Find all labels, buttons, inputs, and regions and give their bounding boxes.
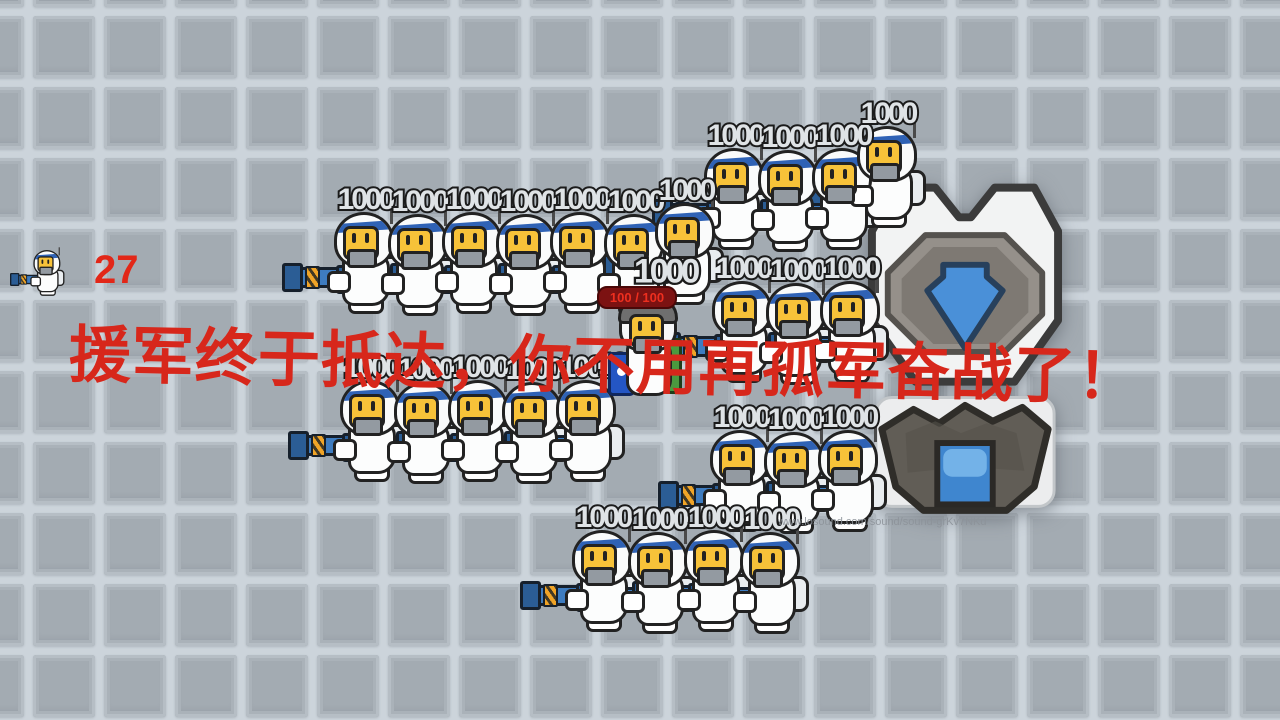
unit-hp-label: 1000 [688, 503, 743, 533]
soldier-arm [621, 591, 645, 613]
unit-hp-label: 1000 [716, 254, 771, 284]
gas-mask-icon [455, 249, 485, 268]
unit-hp-label: 1000 [770, 256, 825, 286]
soldier-arm [381, 273, 405, 295]
unit-hp-label: 1000 [446, 185, 501, 215]
soldier-arm [435, 271, 459, 293]
soldier-arm [565, 589, 589, 611]
gas-mask-icon [641, 569, 671, 588]
unit-hp-label: 1000 [861, 99, 916, 129]
soldier-arm [327, 271, 351, 293]
gas-mask-icon [515, 419, 545, 438]
bazooka-muzzle [288, 431, 309, 460]
gas-mask-icon [563, 249, 593, 268]
soldier-arm [811, 489, 835, 511]
soldier-eyes [622, 235, 626, 245]
hazard-stripe [543, 584, 558, 607]
unit-hp-label: 1000 [338, 185, 393, 215]
unit-hp-label: 1000 [608, 187, 663, 217]
soldier-eyes [875, 147, 879, 157]
gas-mask-icon [771, 187, 801, 206]
soldier-arm [543, 271, 567, 293]
soldier-eyes [836, 451, 840, 461]
soldier-arm [333, 439, 357, 461]
gas-mask-icon [585, 567, 615, 586]
resource-counter: 27 [94, 248, 139, 293]
gas-mask-icon [401, 251, 431, 270]
soldier-eyes [728, 451, 732, 461]
soldier-eyes [838, 302, 842, 312]
gas-mask-icon [353, 417, 383, 436]
soldier-eyes [776, 171, 780, 181]
unit-hp-label: 1000 [659, 176, 714, 206]
soldier-eyes [412, 403, 416, 413]
hazard-stripe [305, 266, 320, 289]
hero-health-bar: 100 / 100 [597, 286, 677, 309]
unit-hp-label: 1000 [554, 185, 609, 215]
gas-mask-icon [825, 185, 855, 204]
soldier-arm [733, 591, 757, 613]
unit-hp-label: 1000 [708, 121, 763, 151]
soldier-eyes [406, 235, 410, 245]
soldier-arm [751, 209, 775, 231]
gas-mask-icon [831, 467, 861, 486]
soldier-arm [387, 441, 411, 463]
bazooka-muzzle [520, 581, 541, 610]
gas-mask-icon [717, 185, 747, 204]
soldier-eyes [466, 401, 470, 411]
soldier-eyes [42, 259, 44, 264]
soldier-eyes [673, 224, 677, 234]
soldier-arm [495, 441, 519, 463]
gas-mask-icon [509, 251, 539, 270]
gas-mask-icon [777, 469, 807, 488]
soldier-eyes [782, 453, 786, 463]
soldier-eyes [702, 551, 706, 561]
gas-mask-icon [569, 417, 599, 436]
soldier-eyes [646, 553, 650, 563]
soldier-arm [677, 589, 701, 611]
bazooka-muzzle [10, 273, 19, 286]
scout-unit[interactable] [28, 250, 67, 294]
gas-mask-icon [753, 569, 783, 588]
unit-hp-label: 1000 [762, 123, 817, 153]
bazooka-muzzle [282, 263, 303, 292]
gas-mask-icon [347, 249, 377, 268]
soldier-eyes [460, 233, 464, 243]
gas-mask-icon [39, 267, 53, 276]
soldier-eyes [722, 169, 726, 179]
game-viewport: 1000100010001000100010001000100010001000… [0, 0, 1280, 720]
soldier-arm [489, 273, 513, 295]
soldier-eyes [730, 302, 734, 312]
soldier-arm [549, 439, 573, 461]
unit-hp-label: 1000 [633, 255, 696, 290]
soldier-arm [30, 277, 41, 287]
soldier-eyes [784, 304, 788, 314]
unit-hp-label: 1000 [824, 254, 879, 284]
soldier-arm [441, 439, 465, 461]
soldier-eyes [568, 233, 572, 243]
gas-mask-icon [697, 567, 727, 586]
unit-hp-label: 1000 [632, 505, 687, 535]
gas-mask-icon [407, 419, 437, 438]
unit-hp-label: 1000 [500, 187, 555, 217]
soldier-eyes [352, 233, 356, 243]
gas-mask-icon [723, 467, 753, 486]
soldier-eyes [830, 169, 834, 179]
unit-hp-label: 1000 [576, 503, 631, 533]
watermark-text: www.losound.com/sound/sound-grKv7NKd [778, 516, 987, 528]
soldier-arm [805, 207, 829, 229]
health-value: 100 / 100 [610, 290, 664, 305]
unit-hp-label: 1000 [392, 187, 447, 217]
soldier-eyes [514, 235, 518, 245]
gas-mask-icon [461, 417, 491, 436]
hazard-stripe [311, 434, 326, 457]
soldier-eyes [758, 553, 762, 563]
gas-mask-icon [870, 163, 900, 182]
hazard-stripe [20, 274, 27, 284]
soldier-eyes [520, 403, 524, 413]
soldier-eyes [358, 401, 362, 411]
soldier-eyes [590, 551, 594, 561]
